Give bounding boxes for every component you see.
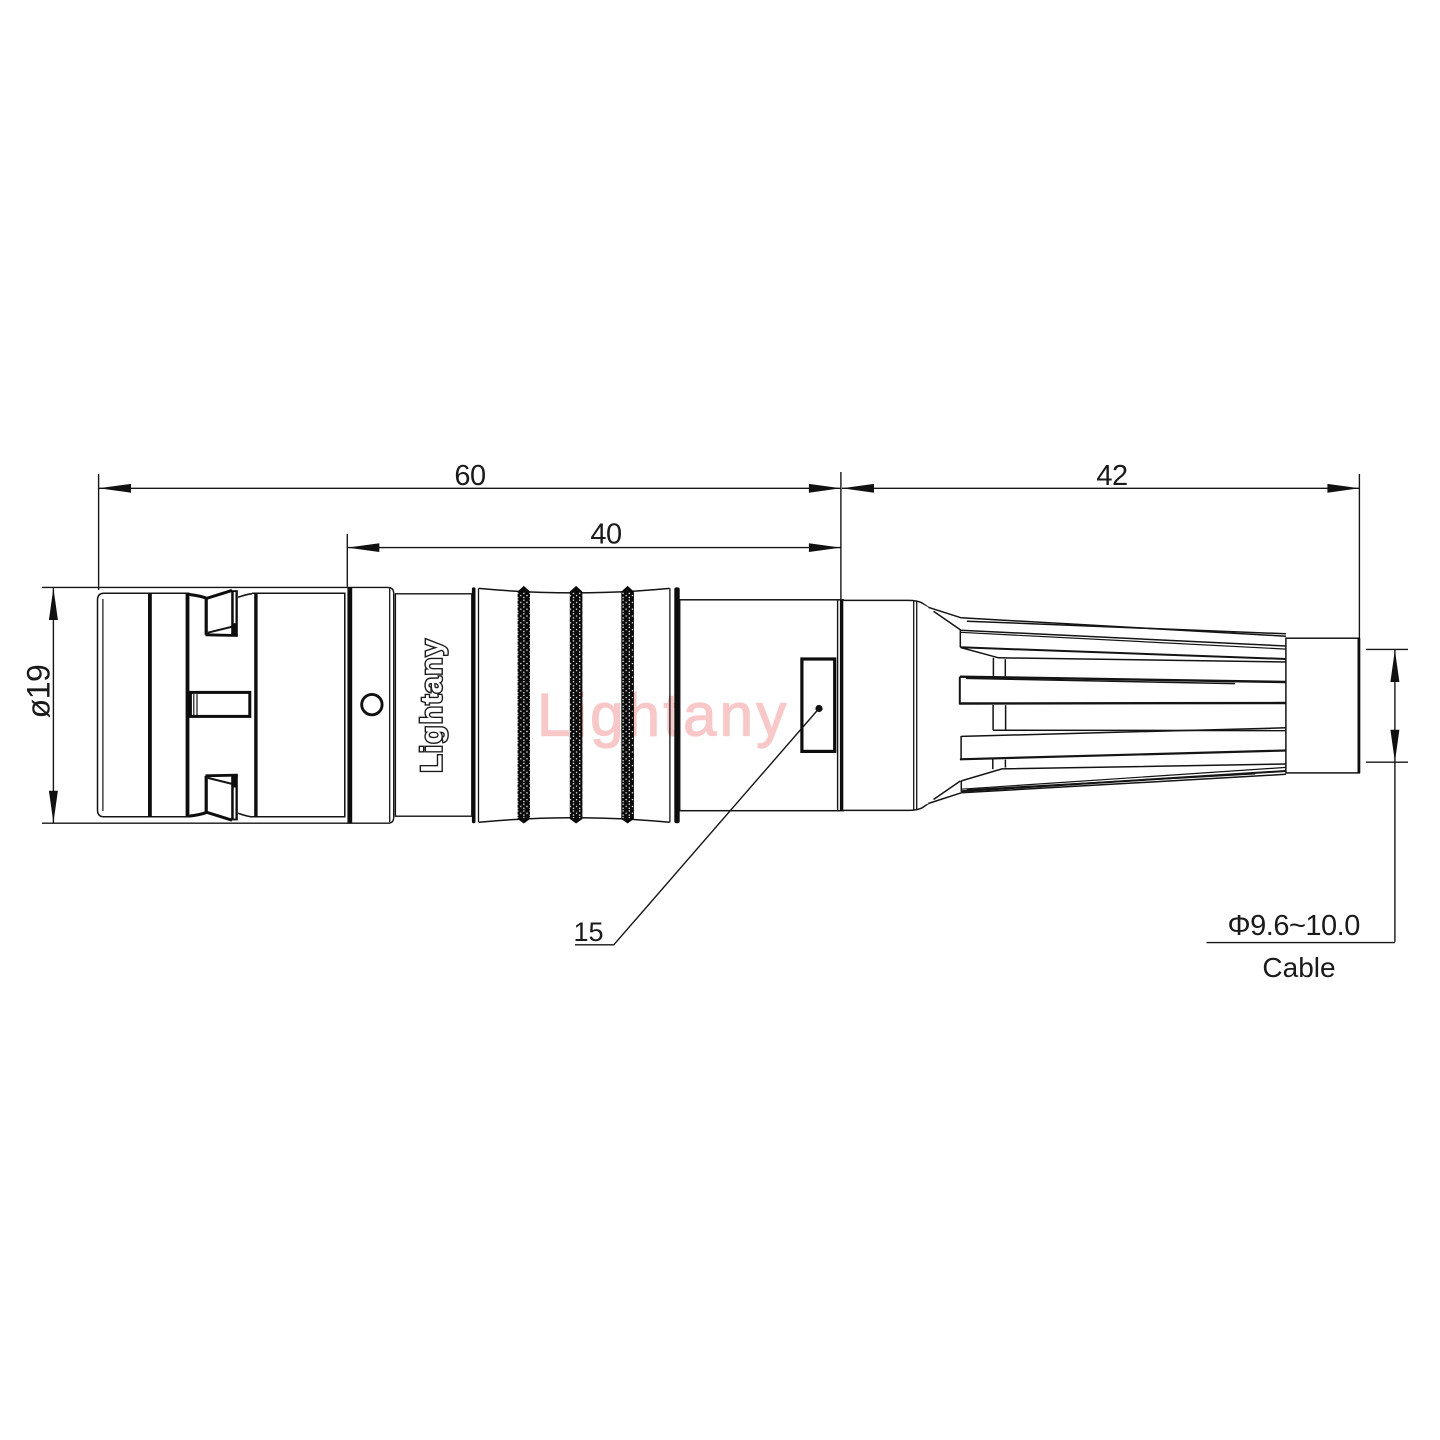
- svg-text:Lightany: Lightany: [537, 682, 789, 749]
- svg-text:42: 42: [1096, 460, 1127, 492]
- svg-text:40: 40: [590, 519, 621, 551]
- svg-text:60: 60: [454, 460, 485, 492]
- svg-text:Lightany: Lightany: [416, 638, 449, 773]
- svg-text:ø19: ø19: [21, 665, 57, 719]
- svg-text:Cable: Cable: [1262, 952, 1335, 983]
- svg-text:15: 15: [573, 917, 603, 947]
- svg-text:Φ9.6~10.0: Φ9.6~10.0: [1228, 910, 1360, 942]
